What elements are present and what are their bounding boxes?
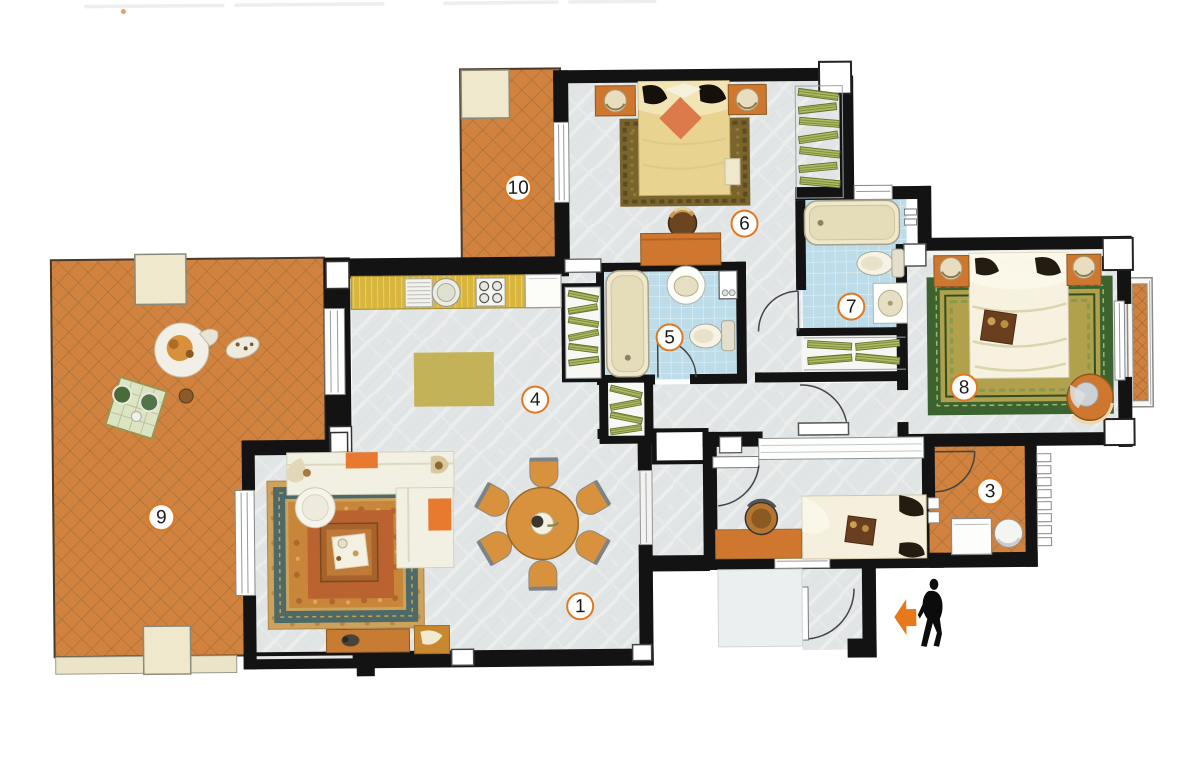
svg-text:6: 6 — [739, 214, 750, 235]
svg-text:9: 9 — [156, 507, 167, 528]
svg-text:8: 8 — [959, 377, 970, 398]
svg-text:3: 3 — [985, 481, 996, 502]
svg-text:10: 10 — [507, 178, 528, 199]
svg-text:5: 5 — [664, 327, 675, 348]
svg-text:7: 7 — [846, 297, 857, 318]
svg-text:4: 4 — [530, 390, 541, 411]
svg-text:1: 1 — [575, 596, 586, 617]
